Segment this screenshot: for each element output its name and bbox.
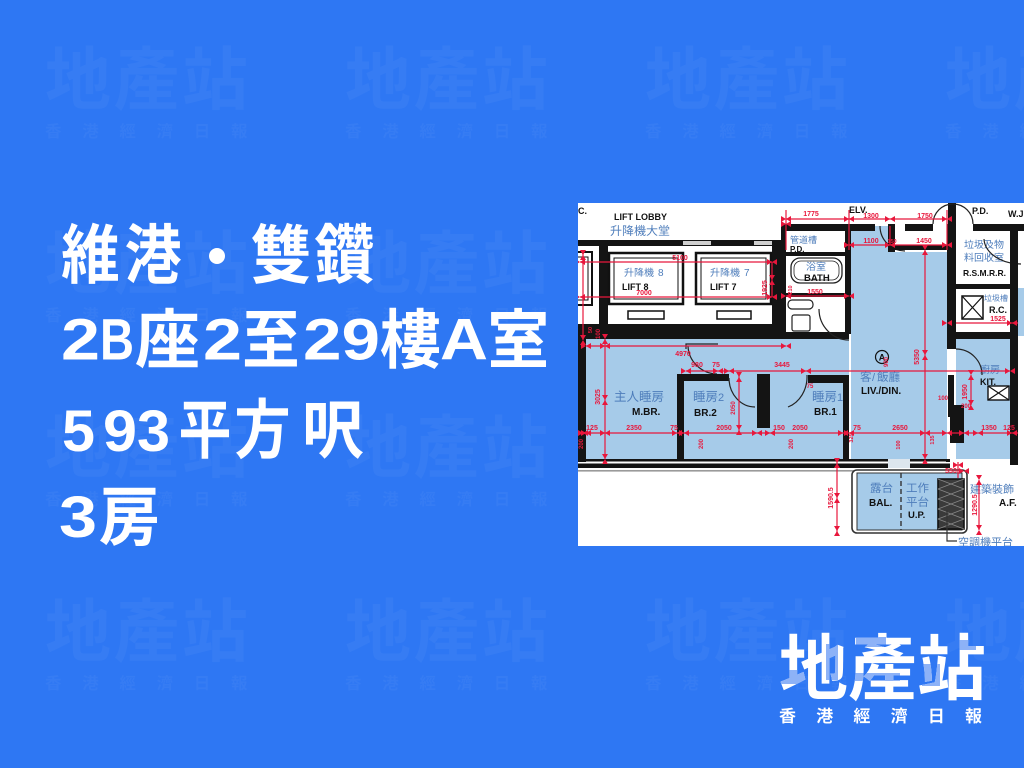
svg-text:1100: 1100 [863,238,878,245]
svg-text:2650: 2650 [892,425,908,432]
svg-text:1300: 1300 [863,213,879,220]
svg-text:8: 8 [658,268,664,279]
svg-text:325: 325 [849,433,855,442]
svg-text:3: 3 [137,397,170,463]
svg-text:1950: 1950 [962,384,969,400]
svg-text:2: 2 [203,306,242,372]
svg-text:C.: C. [578,206,587,216]
svg-text:900: 900 [884,356,890,367]
svg-text:R.C.: R.C. [989,305,1007,315]
svg-text:1525: 1525 [990,316,1006,323]
svg-text:125: 125 [1003,425,1015,432]
svg-text:125: 125 [586,425,598,432]
svg-text:135: 135 [930,435,936,444]
svg-text:7000: 7000 [636,290,652,297]
svg-text:LIFT LOBBY: LIFT LOBBY [614,212,667,222]
svg-text:9: 9 [103,397,137,463]
svg-text:7: 7 [744,268,750,279]
svg-text:2: 2 [718,392,724,404]
svg-text:100: 100 [938,396,949,402]
svg-text:2050: 2050 [731,401,737,415]
svg-text:2: 2 [61,306,100,372]
svg-text:BATH: BATH [804,273,830,284]
svg-text:5100: 5100 [672,255,688,262]
svg-text:M.BR.: M.BR. [632,407,661,418]
svg-text:W.J: W.J [1008,209,1024,219]
svg-text:1290.5: 1290.5 [972,494,979,516]
svg-text:50: 50 [588,327,594,333]
svg-text:B: B [100,306,134,372]
svg-text:BR.1: BR.1 [814,407,837,418]
svg-text:1450: 1450 [916,238,932,245]
svg-text:550: 550 [945,468,957,475]
svg-text:P.D.: P.D. [972,206,988,216]
svg-text:150: 150 [773,425,785,432]
svg-text:980: 980 [691,362,703,369]
svg-text:200: 200 [961,404,972,410]
svg-text:150: 150 [887,239,896,245]
svg-text:1750: 1750 [917,213,933,220]
svg-text:100: 100 [896,440,902,449]
svg-text:5350: 5350 [914,349,921,365]
svg-text:75: 75 [807,384,814,390]
svg-text:29: 29 [303,306,380,372]
svg-text:R.S.M.R.R.: R.S.M.R.R. [963,268,1006,278]
svg-text:1350: 1350 [981,425,997,432]
svg-text:BR.2: BR.2 [694,408,717,419]
svg-text:LIV./DIN.: LIV./DIN. [861,386,901,397]
svg-text:75: 75 [712,362,720,369]
svg-text:1: 1 [837,392,843,404]
svg-text:1550: 1550 [807,289,823,296]
svg-text:3445: 3445 [774,362,790,369]
svg-text:210: 210 [788,285,794,294]
svg-text:U.P.: U.P. [908,510,925,521]
svg-text:LIFT 7: LIFT 7 [710,282,737,292]
svg-text:A: A [440,306,488,372]
svg-text:A.F.: A.F. [999,498,1017,509]
svg-text:200: 200 [789,438,795,449]
svg-text:BAL.: BAL. [869,498,893,509]
svg-text:3025: 3025 [595,389,602,405]
svg-text:1590.5: 1590.5 [828,487,835,509]
svg-text:5: 5 [62,397,95,463]
svg-text:3: 3 [59,483,97,549]
svg-text:1775: 1775 [803,211,819,218]
svg-text:2350: 2350 [626,425,642,432]
svg-text:200: 200 [699,438,705,449]
svg-text:2050: 2050 [792,425,808,432]
svg-text:2050: 2050 [716,425,732,432]
svg-text:200: 200 [579,438,585,449]
svg-text:75: 75 [853,425,861,432]
svg-text:100: 100 [596,328,602,339]
svg-text:4970: 4970 [675,351,691,358]
svg-text:1925: 1925 [762,280,769,296]
svg-text:75: 75 [670,425,678,432]
